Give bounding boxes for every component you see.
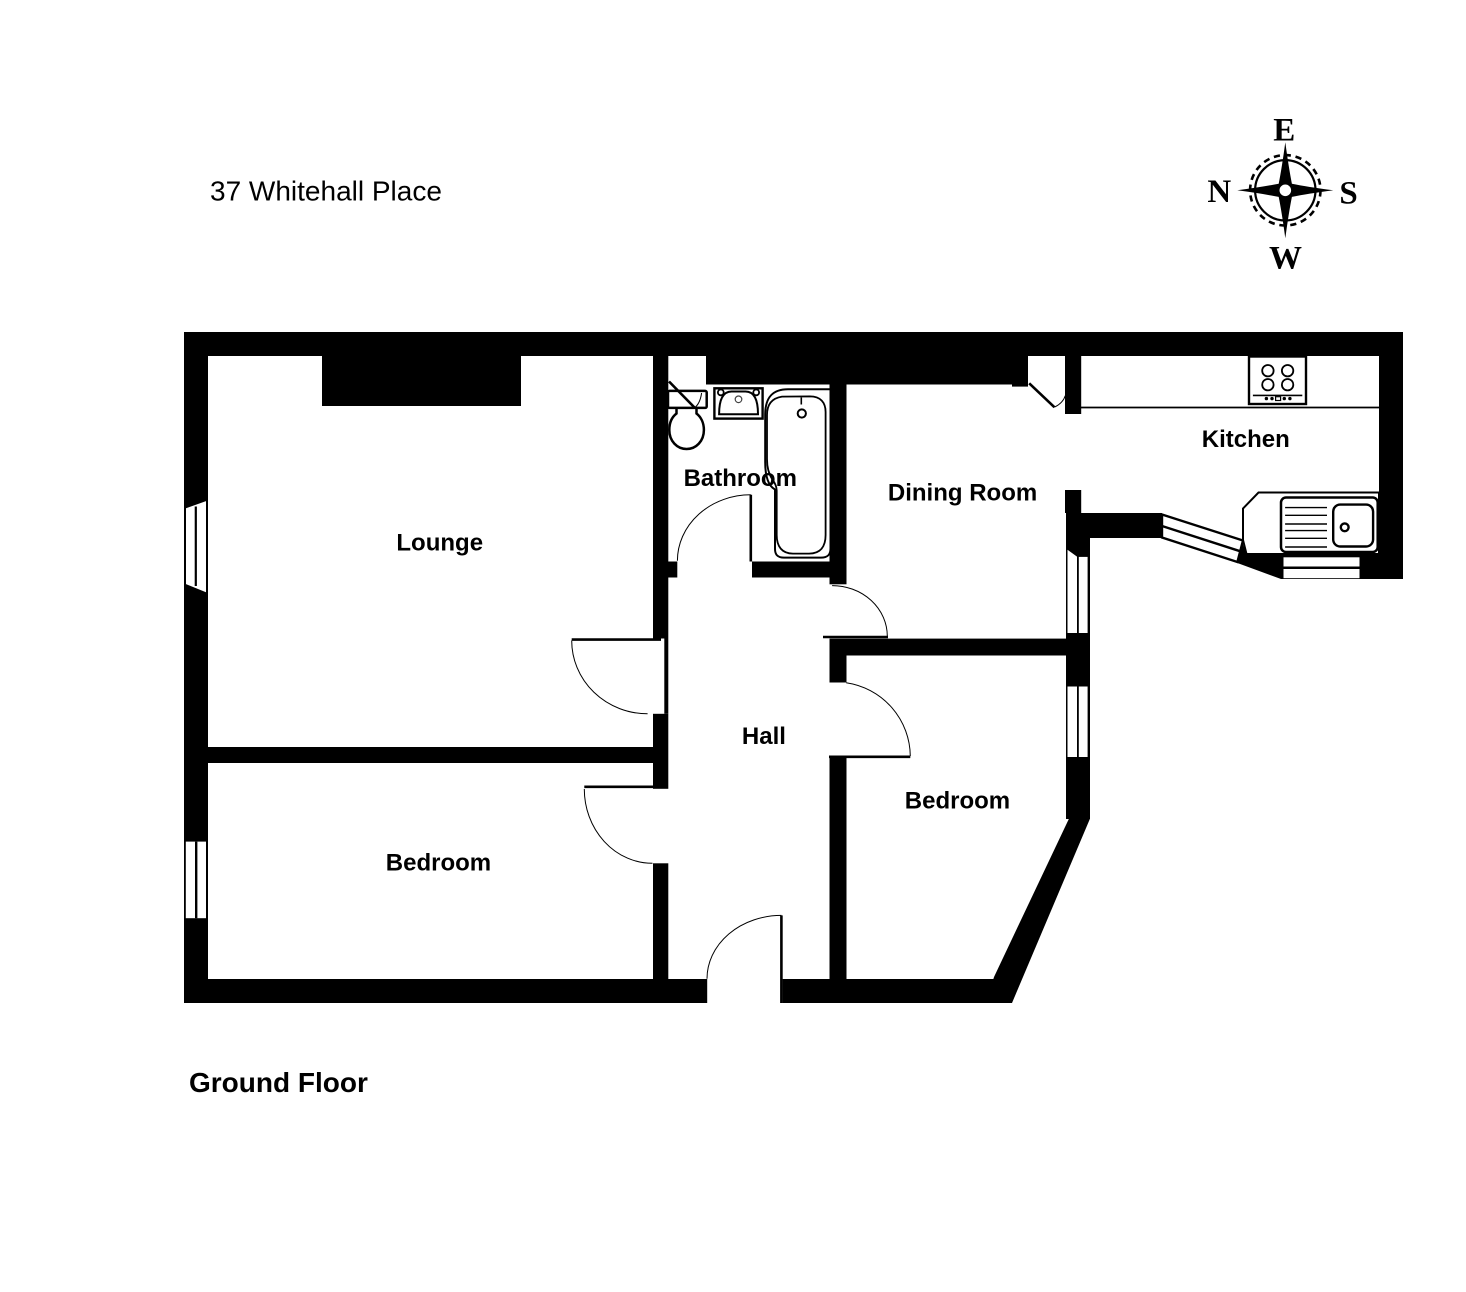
svg-text:Bedroom: Bedroom xyxy=(905,788,1010,815)
svg-text:Bathroom: Bathroom xyxy=(684,465,797,492)
svg-text:W: W xyxy=(1269,241,1302,277)
svg-text:37 Whitehall Place: 37 Whitehall Place xyxy=(210,176,442,207)
svg-text:Ground Floor: Ground Floor xyxy=(189,1067,368,1098)
svg-text:Hall: Hall xyxy=(742,723,786,750)
svg-text:S: S xyxy=(1339,176,1357,212)
svg-text:E: E xyxy=(1273,112,1295,148)
svg-text:Dining Room: Dining Room xyxy=(888,480,1037,507)
svg-text:Lounge: Lounge xyxy=(396,530,483,557)
svg-text:N: N xyxy=(1207,174,1231,210)
svg-text:Kitchen: Kitchen xyxy=(1202,426,1290,453)
svg-text:Bedroom: Bedroom xyxy=(386,850,491,877)
